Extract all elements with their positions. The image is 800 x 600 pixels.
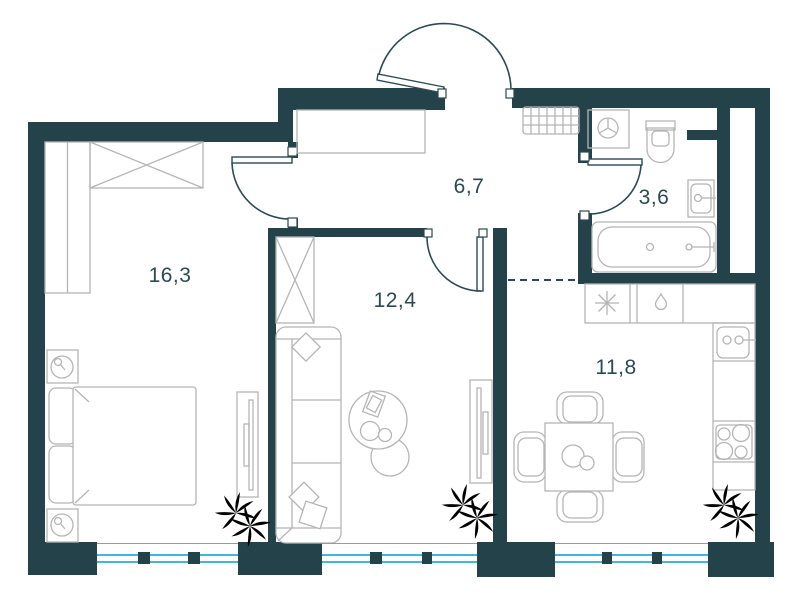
plant-bedroom-icon	[215, 492, 271, 547]
bedroom: 16,3	[45, 142, 271, 547]
washing-machine-icon	[588, 110, 629, 148]
plant-kitchen-icon	[703, 484, 759, 539]
nightstand-bottom	[47, 509, 78, 542]
entrance-door	[377, 24, 514, 98]
dining-set	[514, 392, 644, 522]
bathtub-icon	[592, 222, 716, 272]
living-wardrobe-crossed	[276, 237, 314, 323]
floor-plan-page: 16,3	[0, 0, 800, 600]
toilet-icon	[646, 121, 675, 163]
bedroom-door	[232, 147, 297, 227]
windows	[97, 544, 708, 565]
living-room-door	[424, 229, 487, 291]
nightstand-top	[47, 350, 78, 383]
window-living	[322, 554, 477, 563]
kitchen-area-label: 11,8	[595, 356, 636, 379]
hob-icon	[716, 425, 753, 460]
kitchen: 11,8	[514, 284, 759, 539]
window-bedroom	[97, 554, 238, 563]
bathroom-area-label: 3,6	[639, 186, 670, 209]
chair-right	[612, 432, 644, 482]
hallway: 6,7	[297, 107, 579, 280]
water-drop-icon	[656, 294, 667, 310]
window-kitchen	[555, 554, 708, 563]
extract-star-icon	[595, 291, 619, 315]
floor-plan: 16,3	[0, 0, 800, 600]
plant-living-icon	[442, 484, 498, 539]
living-room: 12,4	[276, 237, 498, 543]
hallway-area-label: 6,7	[454, 175, 485, 198]
bathroom-door	[580, 152, 642, 220]
bed	[49, 387, 196, 505]
bedroom-area-label: 16,3	[149, 264, 192, 287]
hall-closet-hatched	[297, 110, 425, 153]
living-area-label: 12,4	[374, 289, 417, 312]
chair-bottom	[557, 490, 603, 522]
bathroom-sink-icon	[688, 180, 716, 217]
bedroom-closet-hatched	[45, 142, 90, 293]
sofa	[276, 327, 341, 543]
tv-console-bedroom	[237, 392, 258, 497]
tv-console-living	[470, 380, 492, 483]
bedroom-wardrobe-crossed	[90, 142, 203, 188]
kitchen-sink-icon	[717, 327, 756, 358]
chair-top	[557, 392, 603, 424]
hall-grid-cabinet	[523, 107, 579, 134]
chair-left	[514, 432, 546, 482]
coffee-tables	[349, 391, 409, 476]
